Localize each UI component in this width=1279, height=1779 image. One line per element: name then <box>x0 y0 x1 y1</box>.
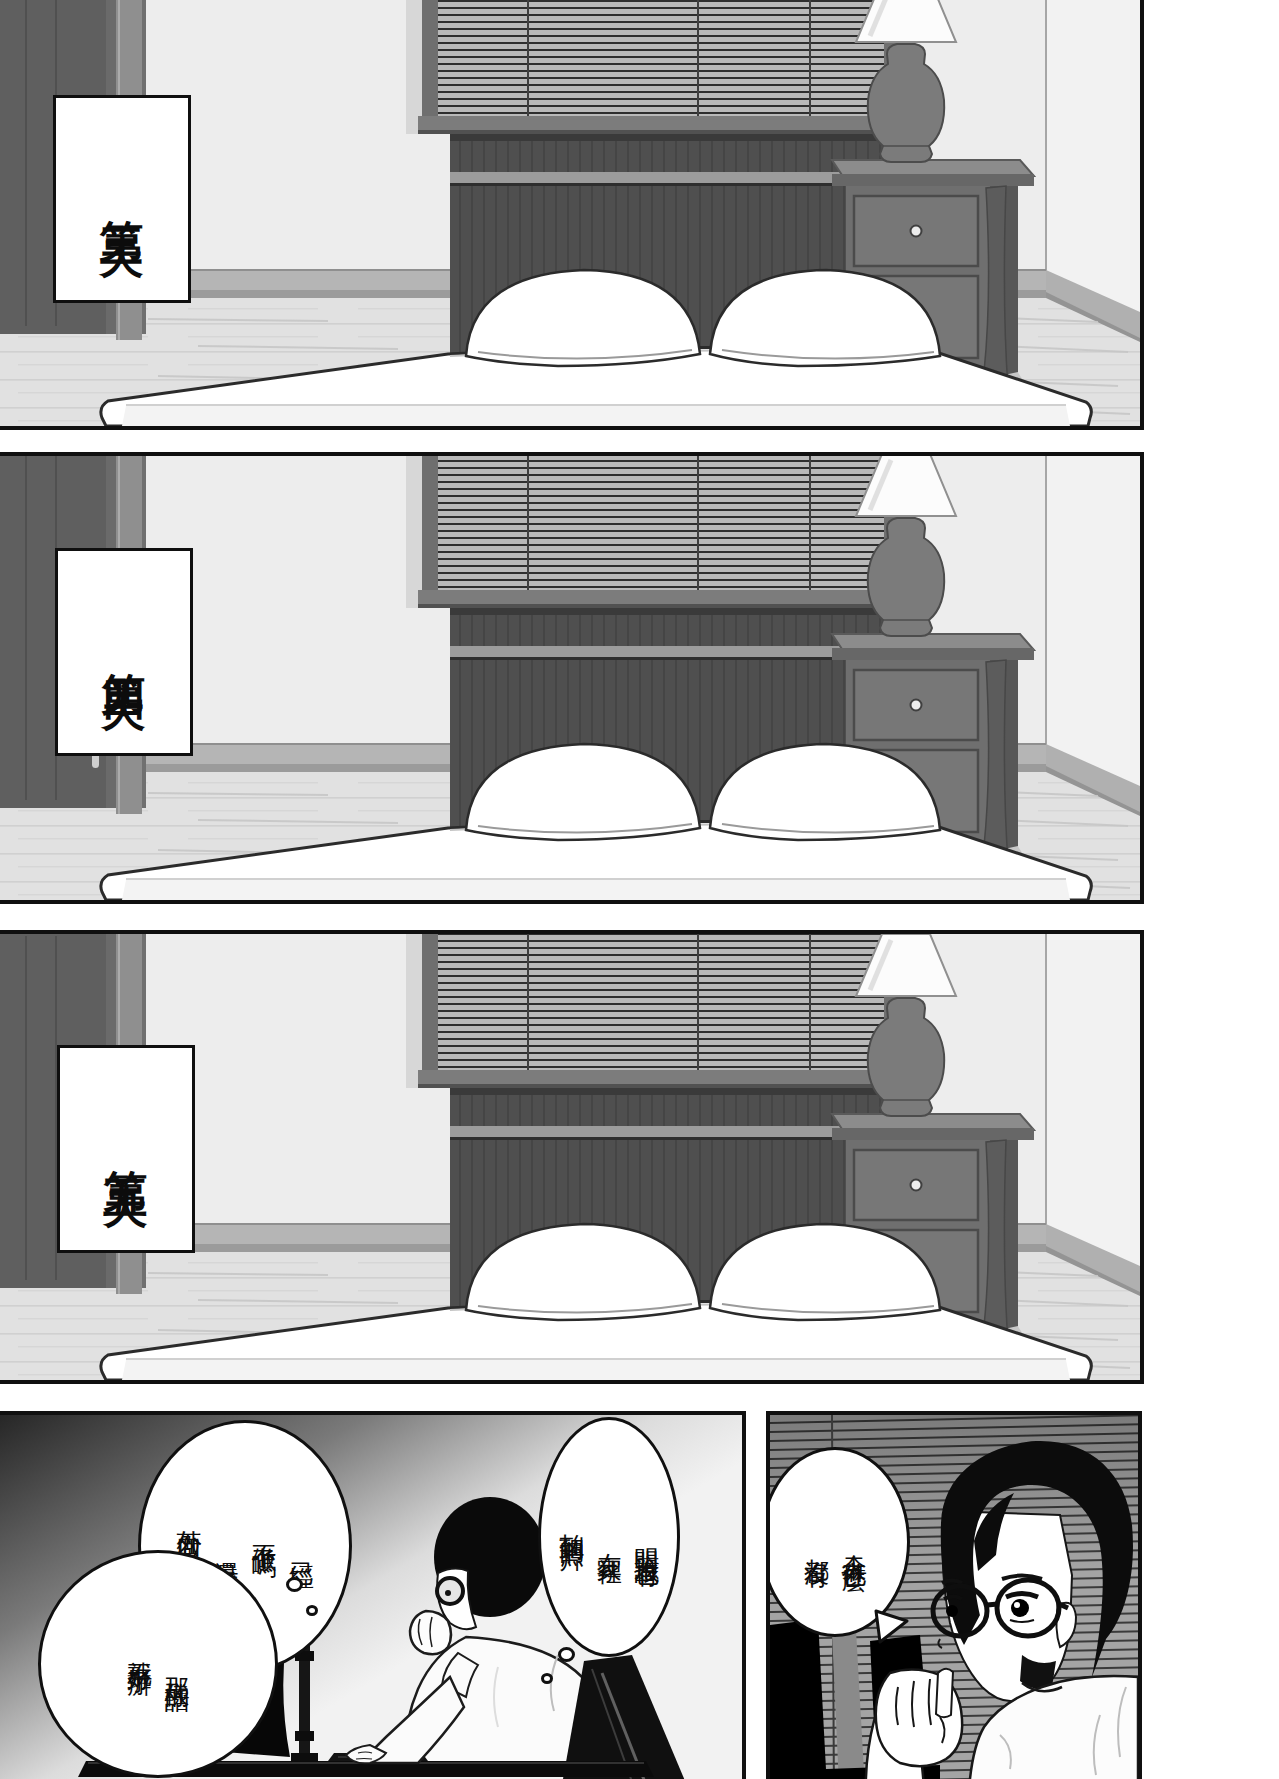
manga-page: { "panels": [ { "id": "day3", "day_label… <box>0 0 1279 1779</box>
speech-bubble-tail <box>870 1609 910 1645</box>
thought-bubble-trouble-text: 那樣的話 就不好辦了… <box>121 1641 196 1687</box>
thought-trail-dot <box>541 1673 553 1684</box>
day-caption-5: 第五天 <box>57 1045 195 1253</box>
thought-trail-dot <box>286 1577 303 1592</box>
speech-bubble-today-text: 今天也什麼 都沒有 <box>798 1535 873 1550</box>
day-caption-3: 第三天 <box>53 95 191 303</box>
panel-closeup-face: 今天也什麼 都沒有 <box>766 1411 1142 1779</box>
thought-bubble-photos: 明明應該也有 在家裡 拍到的照片… <box>538 1417 680 1657</box>
thought-bubble-photos-text: 明明應該也有 在家裡 拍到的照片… <box>553 1514 666 1560</box>
day-caption-4: 第四天 <box>55 548 193 756</box>
thought-trail-dot <box>558 1647 575 1662</box>
thought-bubble-trouble: 那樣的話 就不好辦了… <box>38 1550 278 1778</box>
thought-trail-dot <box>306 1605 318 1616</box>
panel-computer-desk: 已經 不做了嗎… 還是在 外面做…… 明明應該也有 在家裡 拍到的照片… 那樣的… <box>0 1411 746 1779</box>
